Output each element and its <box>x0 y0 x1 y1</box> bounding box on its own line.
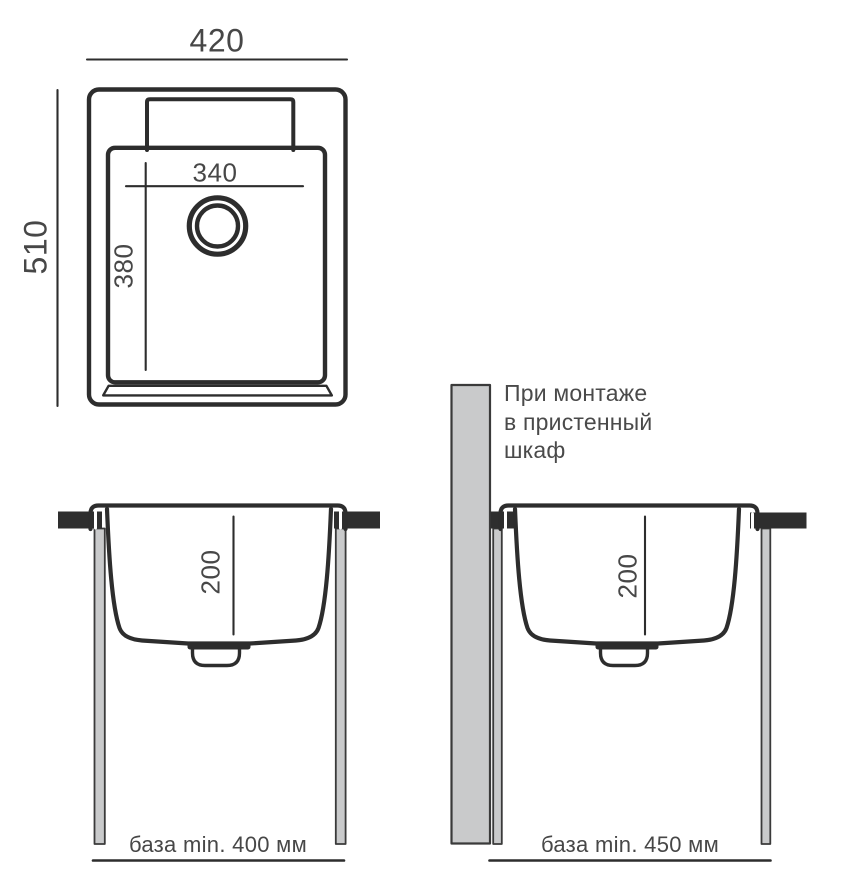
front-apron-outline <box>103 386 332 396</box>
dimension-label-depth-200-right: 200 <box>613 554 644 599</box>
cabinet-right-panel <box>762 529 771 845</box>
base-min-400-label: база min. 400 мм <box>129 832 307 858</box>
sink-rim-outline <box>501 506 758 530</box>
dimension-label-depth-200-left: 200 <box>196 550 227 595</box>
sink-dimensions-diagram: 420 510 340 380 200 200 база min. 400 мм… <box>0 0 863 879</box>
drain-trap-outline <box>601 649 648 666</box>
sink-top-view <box>58 60 348 407</box>
base-min-450-label: база min. 450 мм <box>541 832 719 858</box>
cabinet-right-panel <box>336 529 346 845</box>
diagram-linework <box>0 0 863 879</box>
drain-flange <box>596 642 659 650</box>
dimension-label-bowl-width-340: 340 <box>193 158 238 189</box>
dimension-label-height-510: 510 <box>18 220 55 275</box>
cabinet-left-panel <box>493 529 502 845</box>
wall-cabinet-panel <box>452 385 491 844</box>
cabinet-left-panel <box>95 529 105 845</box>
wall-cabinet-note: При монтаже в пристенный шкаф <box>504 379 652 465</box>
wall-cabinet-note-line3: шкаф <box>504 436 652 465</box>
wall-cabinet-note-line1: При монтаже <box>504 379 652 408</box>
drain-inner-ring-icon <box>197 206 238 247</box>
tap-deck-outline <box>147 99 293 150</box>
dimension-label-bowl-height-380: 380 <box>109 244 140 289</box>
wall-cabinet-note-line2: в пристенный <box>504 408 652 437</box>
sink-rim-outline <box>91 506 346 530</box>
drain-flange <box>188 642 251 650</box>
drain-trap-outline <box>193 649 240 666</box>
dimension-label-width-420: 420 <box>190 23 245 60</box>
